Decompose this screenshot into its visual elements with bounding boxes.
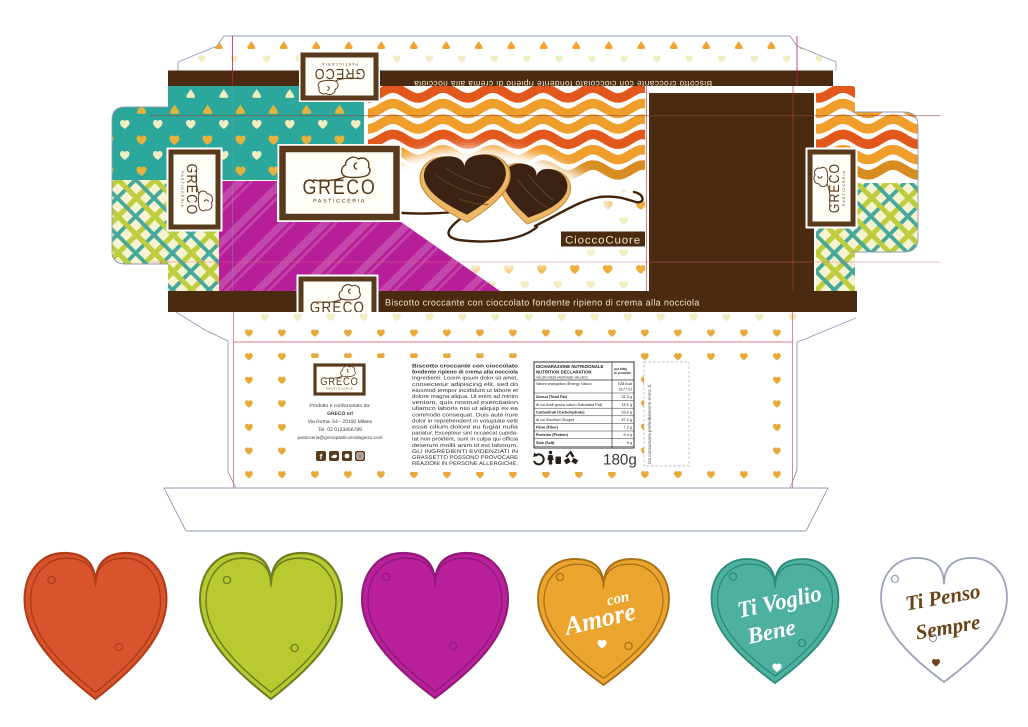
svg-text:fondente ripieno di crema alla: fondente ripieno di crema alla nocciola [412, 370, 518, 376]
svg-text:180g: 180g [603, 452, 637, 469]
svg-text:CioccoCuore: CioccoCuore [565, 235, 641, 247]
svg-text:GRASSETTO POSSONO PROVOCARE: GRASSETTO POSSONO PROVOCARE [412, 455, 519, 461]
svg-text:veniam, quis nostrud exercitat: veniam, quis nostrud exercitation [412, 400, 518, 406]
svg-text:di cui Zuccheri (Sugar): di cui Zuccheri (Sugar) [536, 418, 575, 422]
svg-text:Via Roma, 54 - 20100 Milano: Via Roma, 54 - 20100 Milano [308, 419, 373, 425]
svg-text:ullamco laboris nisi ut aliqui: ullamco laboris nisi ut aliquip ex ea [412, 406, 518, 412]
svg-text:Proteine (Protein): Proteine (Protein) [536, 433, 569, 437]
svg-text:31,3 g: 31,3 g [621, 395, 632, 399]
svg-text:GRECO srl: GRECO srl [327, 411, 353, 417]
svg-text:f: f [320, 453, 323, 462]
svg-text:DICHIARAZIONE NUTRIZIONALE: DICHIARAZIONE NUTRIZIONALE [536, 364, 603, 369]
svg-text:di cui Acidi grassi saturi (Sa: di cui Acidi grassi saturi (Saturated Fa… [536, 403, 603, 407]
svg-text:Grassi (Total Fat): Grassi (Total Fat) [536, 395, 568, 399]
svg-text:Ingredienti: Lorem ipsum dolor: Ingredienti: Lorem ipsum dolor sit amet, [412, 376, 518, 382]
svg-text:Carboidrati (Carbohydrate): Carboidrati (Carbohydrate) [536, 410, 585, 414]
svg-text:53,6 g: 53,6 g [621, 410, 632, 414]
svg-text:Tel. 02 0123456789: Tel. 02 0123456789 [318, 427, 362, 433]
svg-text:REAZIONI IN PERSONE ALLERGICHE: REAZIONI IN PERSONE ALLERGICHE. [412, 461, 518, 467]
svg-text:VALORI MEDI (AVERAGE VALUES): VALORI MEDI (AVERAGE VALUES) [536, 376, 588, 380]
svg-text:deserunt mollit anim id est la: deserunt mollit anim id est laborum. [412, 443, 518, 449]
svg-text:0 g: 0 g [627, 441, 632, 445]
svg-text:esse cillum dolore eu fugiat n: esse cillum dolore eu fugiat nulla [412, 425, 518, 431]
svg-text:pariatur. Excepteur sint occae: pariatur. Excepteur sint occaecat cupida… [412, 431, 518, 437]
svg-text:pasticceria@grecopasticceriala: pasticceria@grecopasticcerialagreco.com [297, 435, 382, 440]
svg-text:tat non proident, sunt in culp: tat non proident, sunt in culpa qui offi… [412, 437, 518, 443]
svg-text:Da consumarsi preferibilmente: Da consumarsi preferibilmente entro: E [647, 384, 652, 464]
svg-text:7,2 g: 7,2 g [624, 426, 632, 430]
svg-text:GLI INGREDIENTI EVIDENZIATI IN: GLI INGREDIENTI EVIDENZIATI IN [412, 449, 518, 455]
svg-text:Valore energetica (Energy Valu: Valore energetica (Energy Value) [536, 382, 592, 386]
svg-text:14,5 g: 14,5 g [621, 403, 632, 407]
svg-text:dolor in reprehenderit in volu: dolor in reprehenderit in voluptate veli… [412, 418, 519, 424]
svg-text:eiusmod tempor incididunt ut l: eiusmod tempor incididunt ut labore et [412, 388, 519, 394]
svg-text:Prodotto e confezionato da:: Prodotto e confezionato da: [309, 403, 370, 409]
svg-text:Biscotto croccante con cioccol: Biscotto croccante con cioccolato fonden… [385, 298, 700, 308]
svg-text:di prodotto: di prodotto [614, 371, 631, 375]
svg-text:Sale (Salt): Sale (Salt) [536, 441, 555, 445]
svg-text:6,4 g: 6,4 g [624, 433, 632, 437]
svg-text:dolore magna aliqua. Ut enim a: dolore magna aliqua. Ut enim ad minim [412, 394, 519, 400]
svg-text:commodo consequat. Duis aute i: commodo consequat. Duis aute irure [412, 412, 518, 418]
svg-text:Biscotto croccante con cioccol: Biscotto croccante con cioccolato [412, 364, 519, 370]
svg-text:47,2 g: 47,2 g [621, 418, 632, 422]
svg-text:Biscotto croccante con cioccol: Biscotto croccante con cioccolato fonden… [414, 79, 712, 89]
svg-text:consectetur adipiscing elit, s: consectetur adipiscing elit, sed do [412, 382, 518, 388]
svg-text:Fibre (Fiber): Fibre (Fiber) [536, 426, 559, 430]
svg-text:NUTRITION DECLARATION: NUTRITION DECLARATION [536, 370, 592, 375]
svg-text:528 kcal: 528 kcal [618, 382, 632, 386]
svg-text:2177 kJ: 2177 kJ [619, 388, 632, 392]
